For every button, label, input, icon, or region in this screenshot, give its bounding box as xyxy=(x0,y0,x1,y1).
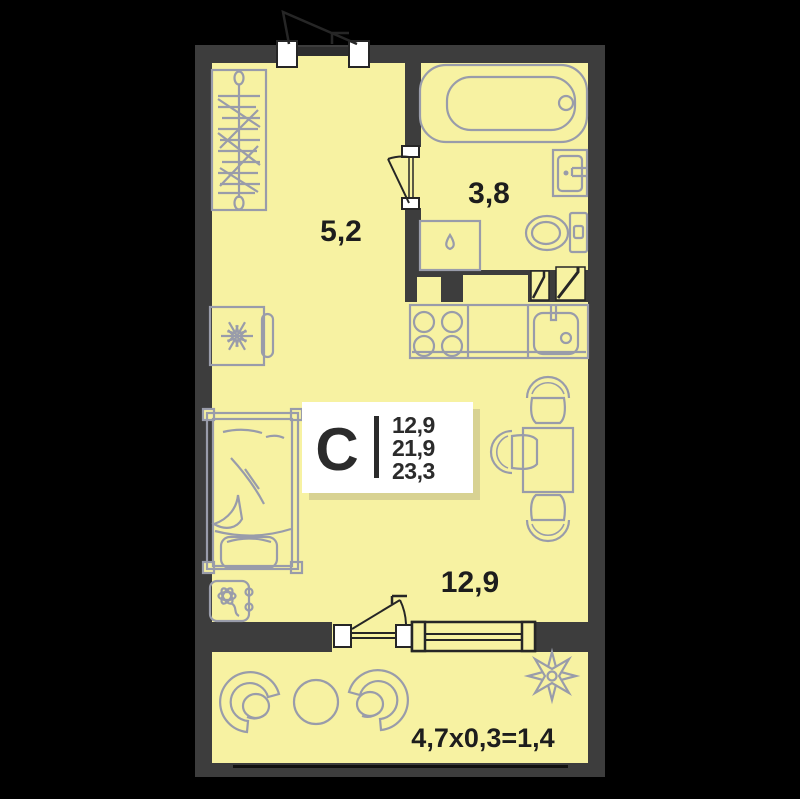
floor-plan-page: 5,2 3,8 12,9 4,7x0,3=1,4 С 12,9 21,9 23,… xyxy=(0,0,800,799)
entrance-door-leaf-closed xyxy=(297,47,349,56)
floor-plan-svg: 5,2 3,8 12,9 4,7x0,3=1,4 С 12,9 21,9 23,… xyxy=(0,0,800,799)
window-icon xyxy=(412,622,535,651)
bathroom-door-jamb-top xyxy=(402,146,419,157)
wall-right xyxy=(588,45,605,777)
hallway-area-label: 5,2 xyxy=(320,215,362,248)
sink-drain xyxy=(564,171,569,176)
balcony-glazing-line xyxy=(233,765,568,768)
wall-niche-small xyxy=(417,277,441,302)
entrance-door-sill xyxy=(297,56,349,63)
card-total-area-with-balcony: 23,3 xyxy=(392,458,435,484)
balcony-door-jamb-left xyxy=(334,625,351,647)
unit-info-card: С 12,9 21,9 23,3 xyxy=(302,402,480,500)
window-cap-left xyxy=(412,622,425,651)
wall-bathroom-lower xyxy=(405,208,421,270)
card-divider xyxy=(374,416,379,478)
living-room-area-label: 12,9 xyxy=(441,566,499,599)
wall-balcony-left xyxy=(212,622,332,652)
wall-top xyxy=(195,45,605,63)
balcony-area-formula: 4,7x0,3=1,4 xyxy=(411,723,554,753)
wall-niche-large xyxy=(463,275,528,302)
wall-balcony-right xyxy=(535,622,588,652)
entrance-door-jamb-right xyxy=(349,41,369,67)
unit-type-letter: С xyxy=(315,416,358,483)
bathroom-door-jamb-bottom xyxy=(402,198,419,209)
bathroom-area-label: 3,8 xyxy=(468,177,510,210)
wall-bathroom-upper xyxy=(405,63,421,147)
window-cap-right xyxy=(522,622,535,651)
apartment-floor xyxy=(212,63,588,622)
window-frame xyxy=(412,622,535,651)
entrance-door-jamb-left xyxy=(277,41,297,67)
balcony-door-jamb-right xyxy=(396,625,413,647)
